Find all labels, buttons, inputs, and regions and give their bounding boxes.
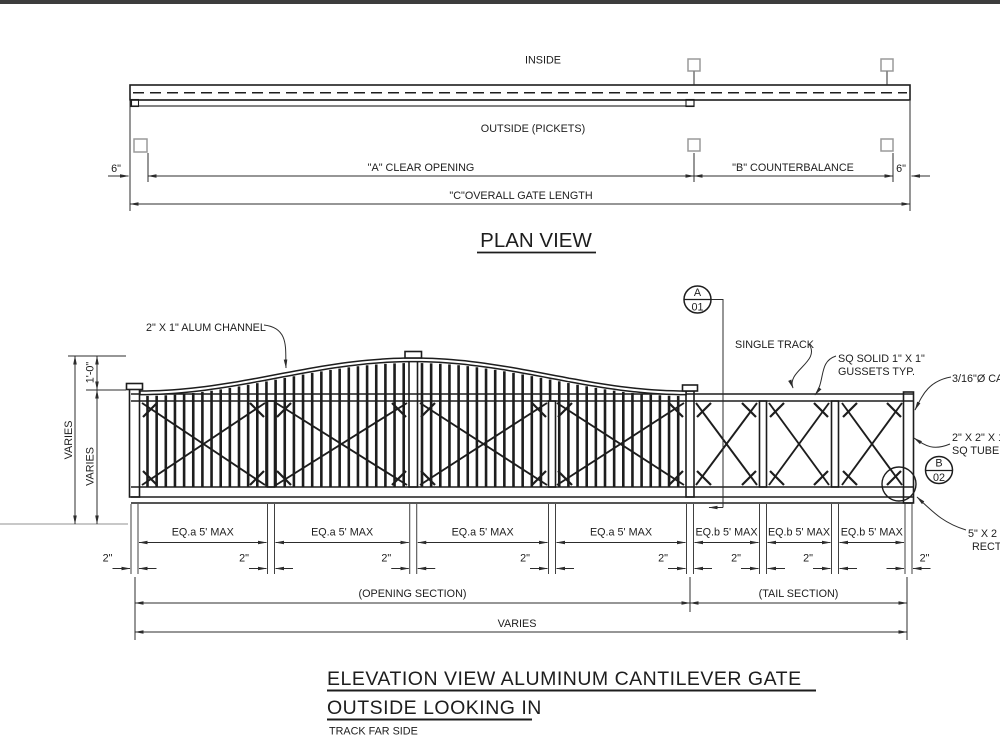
- opening-section-label: (OPENING SECTION): [359, 588, 467, 600]
- eq-panel-label: EQ.b 5' MAX: [841, 527, 903, 539]
- dim-6-right-label: 6": [896, 163, 906, 175]
- eq-panel-label: EQ.b 5' MAX: [695, 527, 757, 539]
- post-width-label: 2": [658, 553, 668, 565]
- track-note: TRACK FAR SIDE: [329, 726, 418, 738]
- frame-height-label: VARIES: [85, 447, 97, 486]
- elevation-title-line-1: ELEVATION VIEW ALUMINUM CANTILEVER GATE: [327, 668, 802, 690]
- outside-label: OUTSIDE (PICKETS): [481, 123, 585, 135]
- gussets-label-2: GUSSETS TYP.: [838, 366, 915, 378]
- eq-panel-label: EQ.a 5' MAX: [452, 527, 514, 539]
- generated-dims: 2"2"2"2"2"2"2"2"EQ.a 5' MAXEQ.a 5' MAXEQ…: [103, 504, 931, 574]
- rect-tube-label-1: 5" X 2: [968, 528, 997, 540]
- guide-post-square: [688, 59, 700, 71]
- post-width-label: 2": [803, 553, 813, 565]
- dim-6-left-label: 6": [111, 163, 121, 175]
- eq-panel-label: EQ.a 5' MAX: [172, 527, 234, 539]
- section-b-letter: B: [935, 458, 942, 470]
- dim-a-label: "A" CLEAR OPENING: [368, 162, 475, 174]
- guide-post-square: [881, 139, 893, 151]
- dim-c-label: "C"OVERALL GATE LENGTH: [449, 190, 592, 202]
- bottom-rail: [131, 487, 913, 503]
- section-b-sheet: 02: [933, 472, 945, 484]
- overall-height-label: VARIES: [63, 421, 75, 460]
- gate-frame-plan: [130, 85, 910, 100]
- inside-label: INSIDE: [525, 55, 561, 67]
- section-marker-a: A 01: [684, 286, 711, 314]
- elevation-view: VARIES 1'-0" VARIES: [0, 286, 1000, 738]
- post-width-label: 2": [520, 553, 530, 565]
- dim-b-label: "B" COUNTERBALANCE: [732, 162, 854, 174]
- post-width-label: 2": [731, 553, 741, 565]
- gussets-label-1: SQ SOLID 1" X 1": [838, 353, 925, 365]
- cable-label: 3/16"Ø CA: [952, 373, 1000, 385]
- guide-post-square: [134, 139, 147, 152]
- guide-post-square: [688, 139, 700, 151]
- section-a-letter: A: [694, 287, 702, 299]
- height-dimensions: VARIES 1'-0" VARIES: [63, 356, 126, 524]
- drawing-sheet: INSIDE OUTSIDE (PICKETS) 6" "A" CLEAR OP…: [0, 0, 1000, 750]
- section-a-sheet: 01: [691, 302, 703, 314]
- eq-panel-label: EQ.b 5' MAX: [768, 527, 830, 539]
- guide-post-square: [881, 59, 893, 71]
- tail-section-label: (TAIL SECTION): [759, 588, 839, 600]
- plan-view-title: PLAN VIEW: [480, 229, 592, 252]
- eq-panel-label: EQ.a 5' MAX: [311, 527, 373, 539]
- overall-length-label: VARIES: [498, 618, 537, 630]
- post-width-label: 2": [381, 553, 391, 565]
- eq-panel-label: EQ.a 5' MAX: [590, 527, 652, 539]
- plan-view: INSIDE OUTSIDE (PICKETS) 6" "A" CLEAR OP…: [108, 55, 930, 253]
- cad-drawing: INSIDE OUTSIDE (PICKETS) 6" "A" CLEAR OP…: [0, 0, 1000, 750]
- post-width-label: 2": [103, 553, 113, 565]
- section-marker-b: B 02: [926, 457, 953, 485]
- alum-channel-label: 2" X 1" ALUM CHANNEL: [146, 322, 266, 334]
- section-dimensions: (OPENING SECTION) (TAIL SECTION) VARIES: [135, 577, 907, 640]
- arch-rise-label: 1'-0": [85, 362, 97, 384]
- post-width-label: 2": [920, 553, 930, 565]
- sq-tube-label-1: 2" X 2" X 1: [952, 432, 1000, 444]
- sq-tube-label-2: SQ TUBE: [952, 445, 999, 457]
- single-track-label: SINGLE TRACK: [735, 339, 815, 351]
- gate-panel-plan: [132, 100, 695, 106]
- post-width-label: 2": [239, 553, 249, 565]
- rect-tube-label-2: RECT: [972, 541, 1000, 553]
- elevation-title-line-2: OUTSIDE LOOKING IN: [327, 697, 542, 719]
